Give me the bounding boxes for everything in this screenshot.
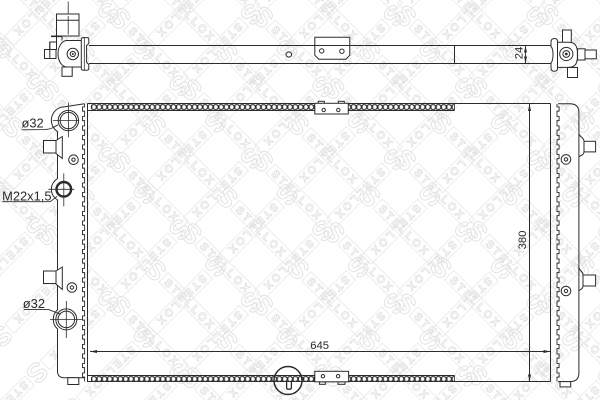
svg-text:ø32: ø32 — [23, 296, 45, 311]
svg-text:ø32: ø32 — [22, 116, 44, 131]
svg-text:380: 380 — [517, 231, 529, 250]
svg-text:645: 645 — [310, 340, 329, 352]
svg-text:M22x1,5: M22x1,5 — [2, 188, 51, 203]
svg-text:24: 24 — [513, 47, 525, 60]
